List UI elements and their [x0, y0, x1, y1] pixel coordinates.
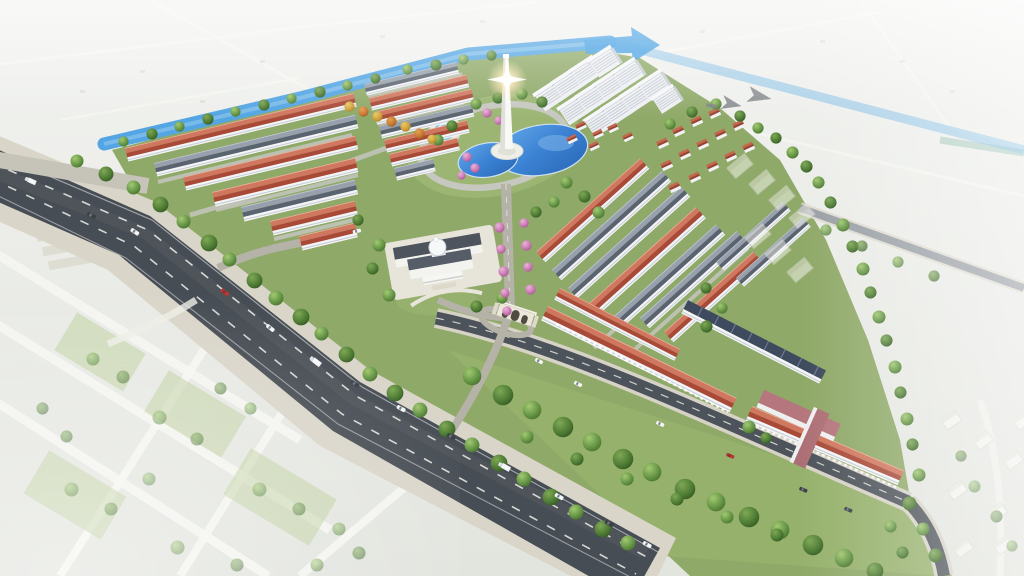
- blossom-tree: [498, 266, 508, 276]
- blossom-tree: [457, 171, 465, 179]
- blossom-tree: [523, 262, 532, 271]
- blossom-tree: [462, 152, 471, 161]
- blossom-tree: [521, 240, 531, 250]
- blossom-tree: [525, 284, 535, 294]
- blossom-tree: [470, 163, 479, 172]
- blossom-tree: [519, 218, 528, 227]
- blossom-tree: [500, 288, 509, 297]
- blossom-tree: [502, 306, 511, 315]
- blossom-tree: [494, 222, 504, 232]
- rendering-canvas: [0, 0, 1024, 576]
- blossom-tree: [496, 244, 505, 253]
